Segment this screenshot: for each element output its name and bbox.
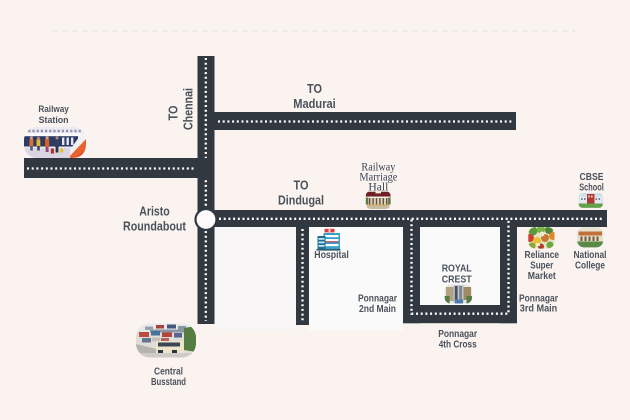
svg-text:3rd Main: 3rd Main xyxy=(520,303,558,315)
svg-text:TO: TO xyxy=(307,81,322,96)
svg-text:TO: TO xyxy=(294,177,309,192)
svg-text:4th Cross: 4th Cross xyxy=(439,339,477,351)
svg-text:Hospital: Hospital xyxy=(314,250,349,261)
svg-text:TO: TO xyxy=(166,106,181,121)
svg-text:CREST: CREST xyxy=(442,273,472,285)
svg-text:Aristo: Aristo xyxy=(139,203,170,218)
svg-text:Madurai: Madurai xyxy=(293,96,336,111)
svg-text:Dindugal: Dindugal xyxy=(278,192,324,207)
svg-text:2nd Main: 2nd Main xyxy=(359,303,396,315)
svg-text:Busstand: Busstand xyxy=(151,376,186,388)
svg-text:College: College xyxy=(575,259,605,271)
svg-text:Chennai: Chennai xyxy=(181,88,196,130)
svg-text:Market: Market xyxy=(528,270,556,282)
svg-text:Station: Station xyxy=(39,115,69,126)
svg-text:Roundabout: Roundabout xyxy=(123,219,187,234)
svg-text:School: School xyxy=(579,182,604,194)
svg-text:Railway: Railway xyxy=(38,104,69,115)
